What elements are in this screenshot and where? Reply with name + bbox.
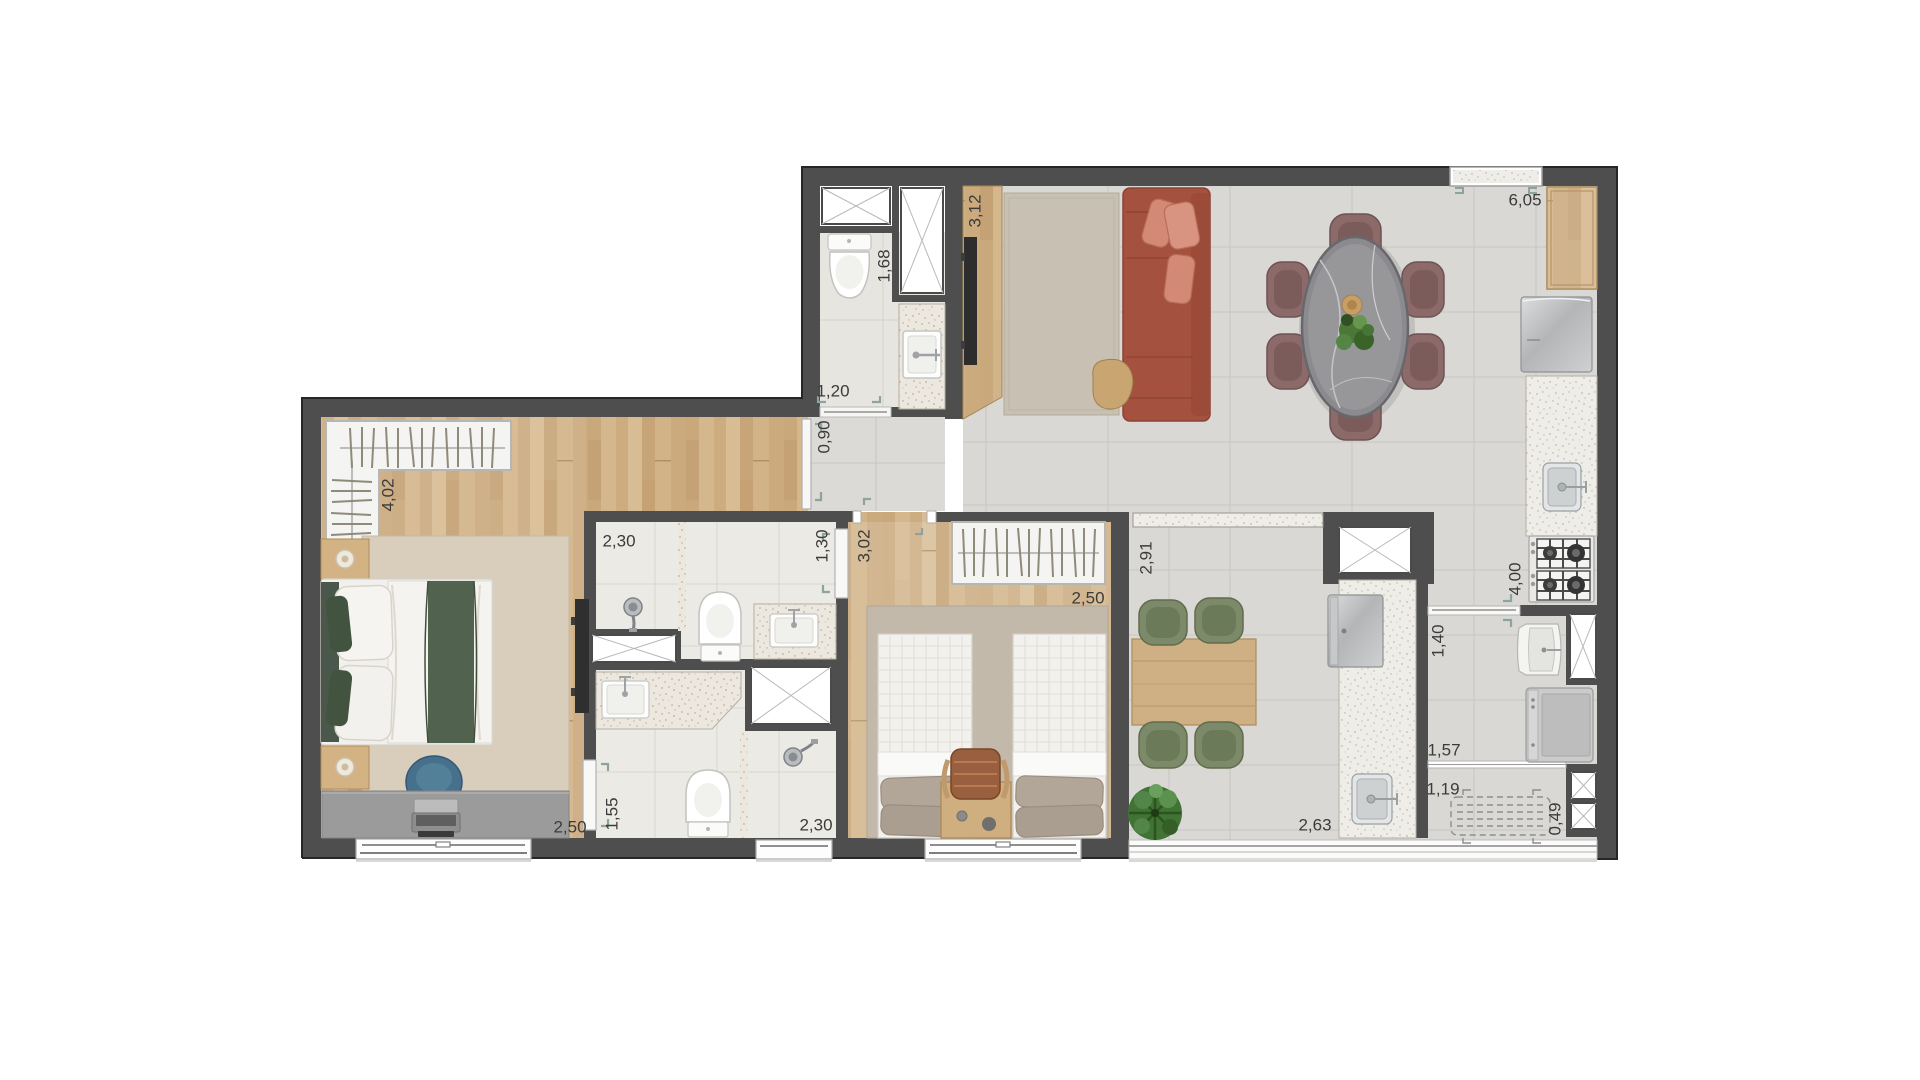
svg-text:1,30: 1,30 [813,529,832,562]
svg-text:2,91: 2,91 [1137,541,1156,574]
svg-text:6,05: 6,05 [1508,191,1541,210]
svg-text:0,90: 0,90 [815,420,834,453]
svg-text:2,50: 2,50 [553,818,586,837]
svg-text:1,19: 1,19 [1426,780,1459,799]
svg-text:1,57: 1,57 [1427,741,1460,760]
svg-text:3,12: 3,12 [966,194,985,227]
svg-text:2,50: 2,50 [1071,589,1104,608]
svg-text:2,30: 2,30 [799,816,832,835]
svg-text:4,00: 4,00 [1506,562,1525,595]
svg-text:0,49: 0,49 [1546,802,1565,835]
svg-text:1,55: 1,55 [603,797,622,830]
svg-text:2,30: 2,30 [602,532,635,551]
svg-text:1,40: 1,40 [1429,624,1448,657]
svg-text:2,63: 2,63 [1298,816,1331,835]
svg-text:4,02: 4,02 [379,478,398,511]
svg-text:3,02: 3,02 [855,529,874,562]
svg-text:1,68: 1,68 [875,249,894,282]
svg-text:1,20: 1,20 [816,382,849,401]
